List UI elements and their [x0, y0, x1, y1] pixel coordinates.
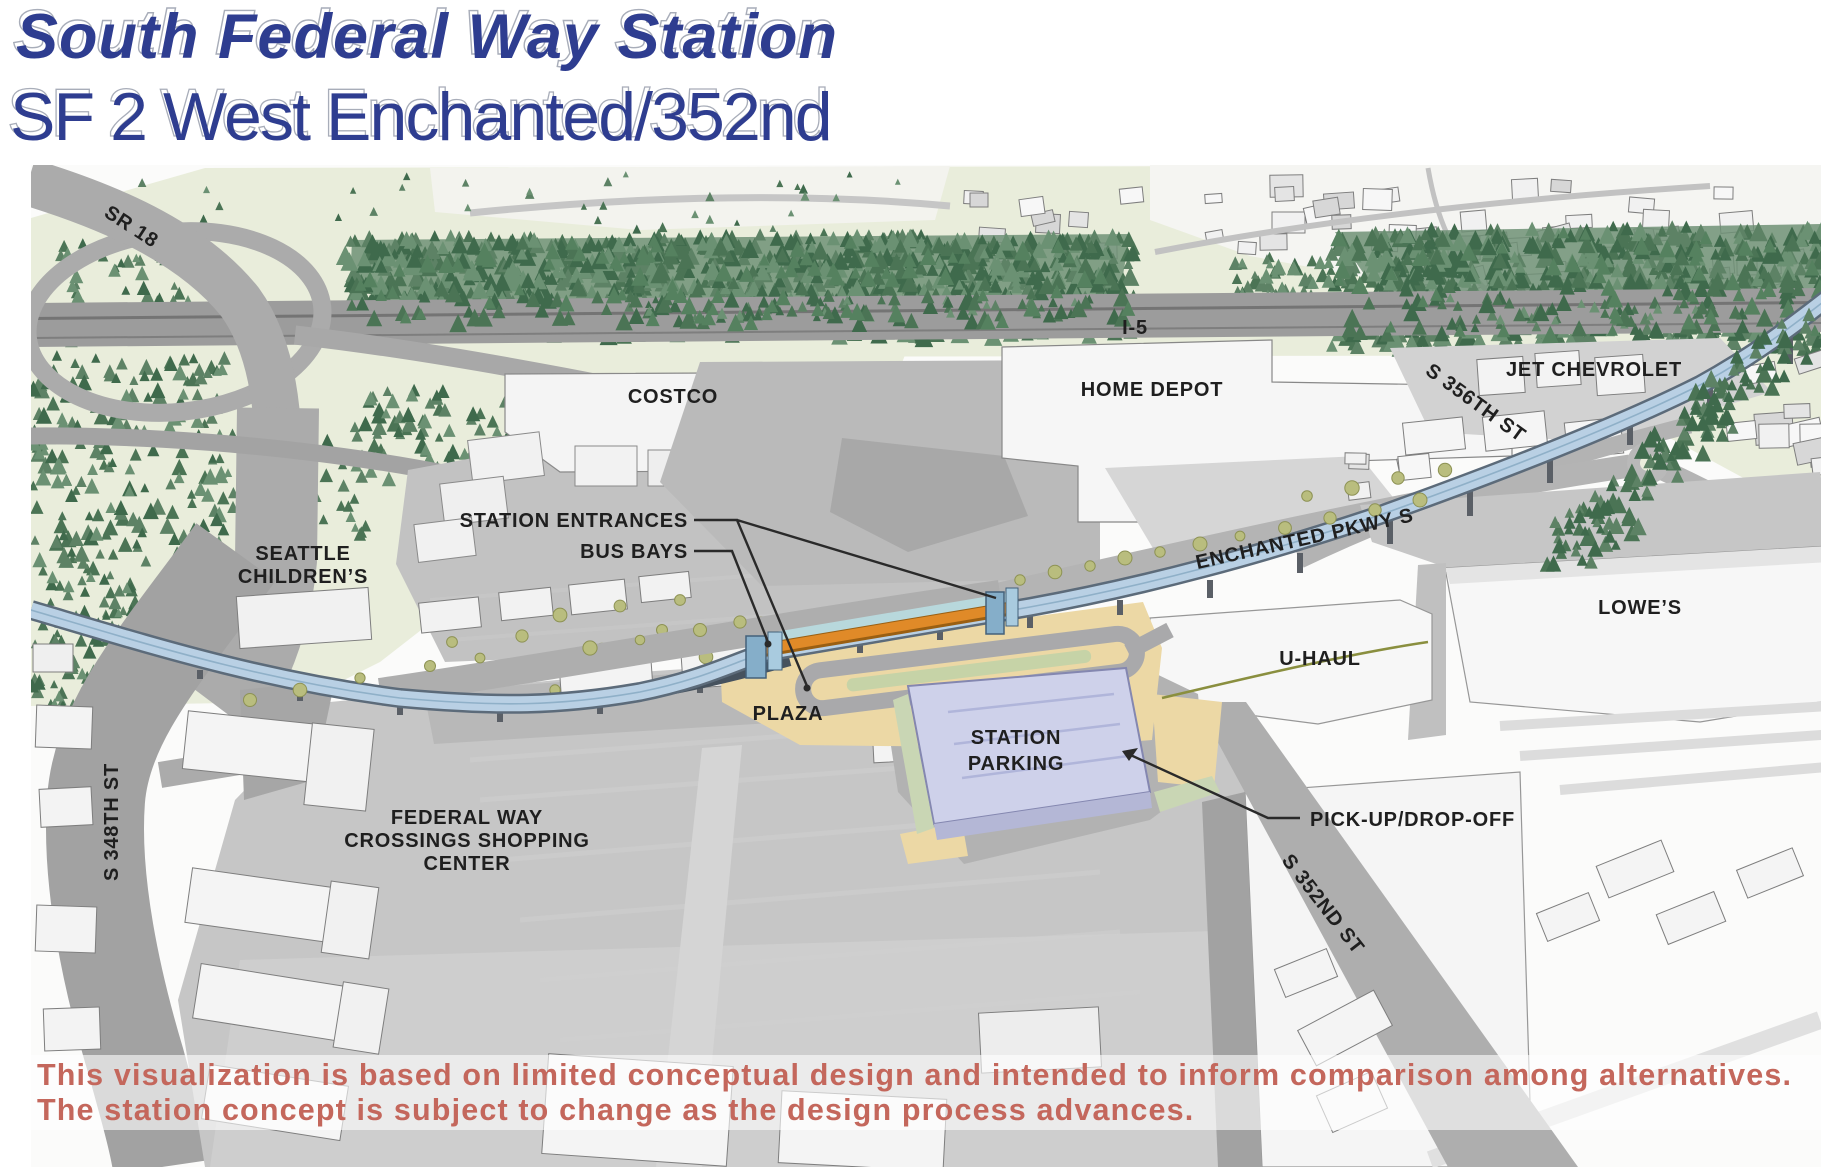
svg-text:PARKING: PARKING [968, 753, 1064, 775]
svg-text:This visualization is based on: This visualization is based on limited c… [37, 1058, 1792, 1092]
svg-text:COSTCO: COSTCO [628, 386, 718, 408]
svg-text:U-HAUL: U-HAUL [1279, 648, 1360, 670]
svg-text:FEDERAL WAY: FEDERAL WAY [391, 807, 543, 829]
svg-text:STATION: STATION [971, 727, 1061, 749]
svg-text:SF 2 West Enchanted/352nd: SF 2 West Enchanted/352nd [10, 79, 831, 155]
svg-text:BUS BAYS: BUS BAYS [580, 541, 688, 563]
svg-text:JET CHEVROLET: JET CHEVROLET [1506, 359, 1682, 381]
svg-text:CHILDREN’S: CHILDREN’S [238, 566, 368, 588]
svg-text:LOWE’S: LOWE’S [1598, 597, 1682, 619]
svg-text:PICK-UP/DROP-OFF: PICK-UP/DROP-OFF [1310, 809, 1515, 831]
svg-text:SEATTLE: SEATTLE [255, 543, 350, 565]
svg-text:South Federal Way Station: South Federal Way Station [16, 2, 838, 72]
svg-text:CROSSINGS SHOPPING: CROSSINGS SHOPPING [344, 830, 590, 852]
svg-text:PLAZA: PLAZA [753, 703, 824, 725]
svg-text:I-5: I-5 [1122, 317, 1148, 339]
svg-text:CENTER: CENTER [423, 853, 510, 875]
svg-text:S 348TH ST: S 348TH ST [101, 763, 123, 881]
svg-text:STATION ENTRANCES: STATION ENTRANCES [460, 510, 688, 532]
svg-text:The station concept is subject: The station concept is subject to change… [37, 1093, 1194, 1127]
svg-text:HOME DEPOT: HOME DEPOT [1081, 379, 1223, 401]
